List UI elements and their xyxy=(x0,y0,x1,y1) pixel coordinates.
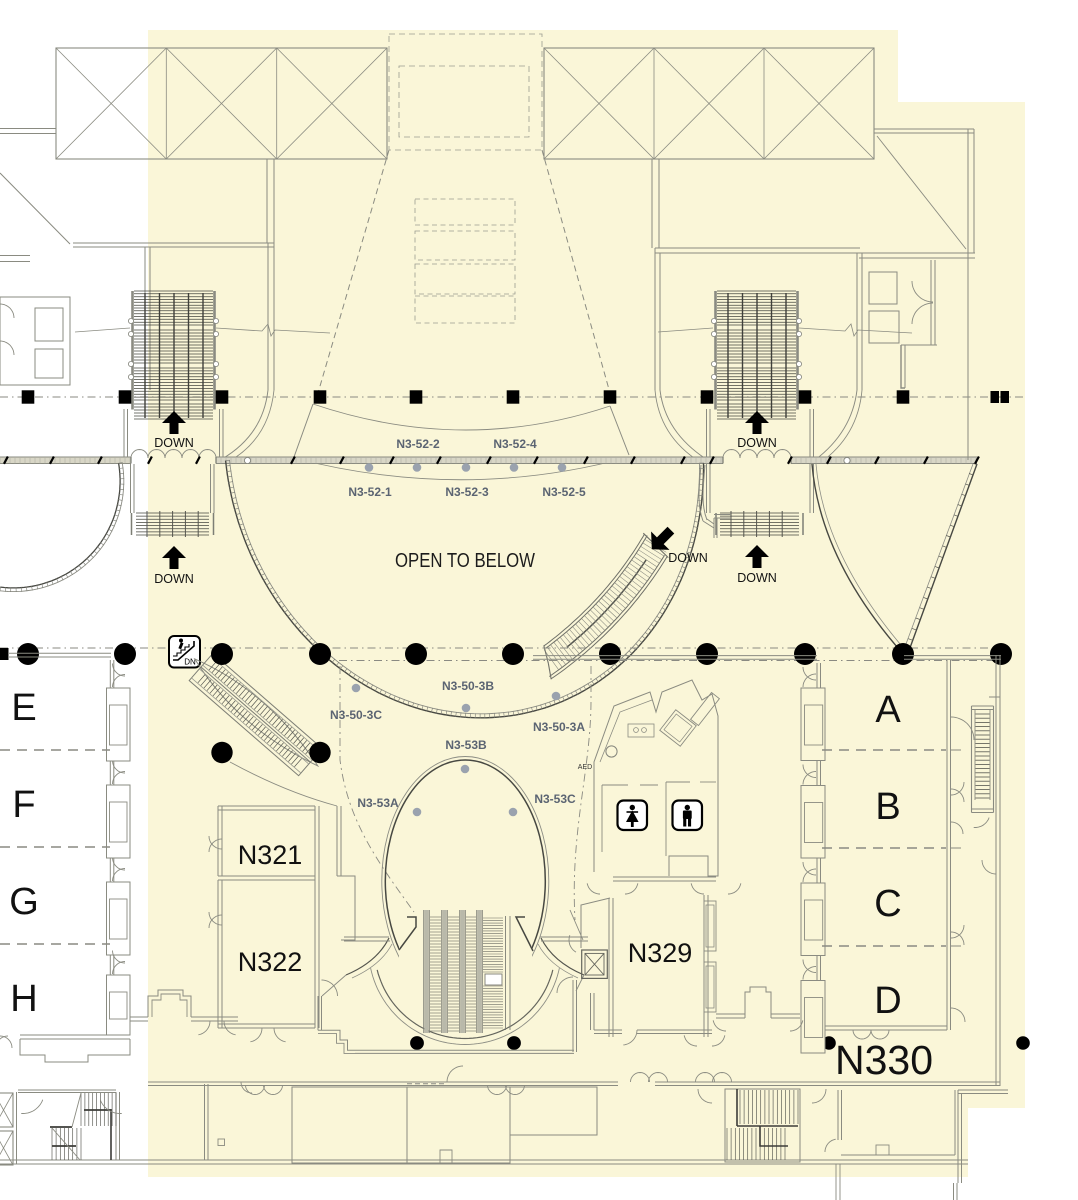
svg-text:N3-52-4: N3-52-4 xyxy=(493,437,537,451)
svg-text:B: B xyxy=(875,786,900,828)
svg-text:N3-50-3C: N3-50-3C xyxy=(330,708,382,722)
svg-text:N3-50-3A: N3-50-3A xyxy=(533,720,585,734)
svg-text:N3-52-5: N3-52-5 xyxy=(542,485,586,499)
svg-text:E: E xyxy=(11,687,36,729)
svg-text:D: D xyxy=(874,980,901,1022)
svg-text:N3-52-3: N3-52-3 xyxy=(445,485,489,499)
svg-text:N3-53B: N3-53B xyxy=(445,738,487,752)
svg-text:DOWN: DOWN xyxy=(668,551,708,565)
svg-text:A: A xyxy=(875,689,901,731)
svg-text:N322: N322 xyxy=(238,947,303,977)
svg-text:N321: N321 xyxy=(238,840,303,870)
svg-text:DOWN: DOWN xyxy=(154,572,194,586)
svg-text:OPEN TO BELOW: OPEN TO BELOW xyxy=(395,550,535,572)
svg-text:N3-50-3B: N3-50-3B xyxy=(442,679,494,693)
svg-text:DOWN: DOWN xyxy=(154,436,194,450)
svg-text:AED: AED xyxy=(578,764,592,771)
svg-text:DOWN: DOWN xyxy=(737,571,777,585)
svg-text:N3-53A: N3-53A xyxy=(357,796,399,810)
svg-text:N329: N329 xyxy=(628,938,693,968)
svg-text:N3-53C: N3-53C xyxy=(534,792,576,806)
svg-text:H: H xyxy=(10,978,37,1020)
svg-text:N3-52-1: N3-52-1 xyxy=(348,485,392,499)
svg-text:N330: N330 xyxy=(835,1037,933,1083)
svg-text:C: C xyxy=(874,883,901,925)
svg-text:N3-52-2: N3-52-2 xyxy=(396,437,440,451)
svg-text:F: F xyxy=(12,784,35,826)
svg-text:DOWN: DOWN xyxy=(737,436,777,450)
svg-text:G: G xyxy=(9,881,39,923)
